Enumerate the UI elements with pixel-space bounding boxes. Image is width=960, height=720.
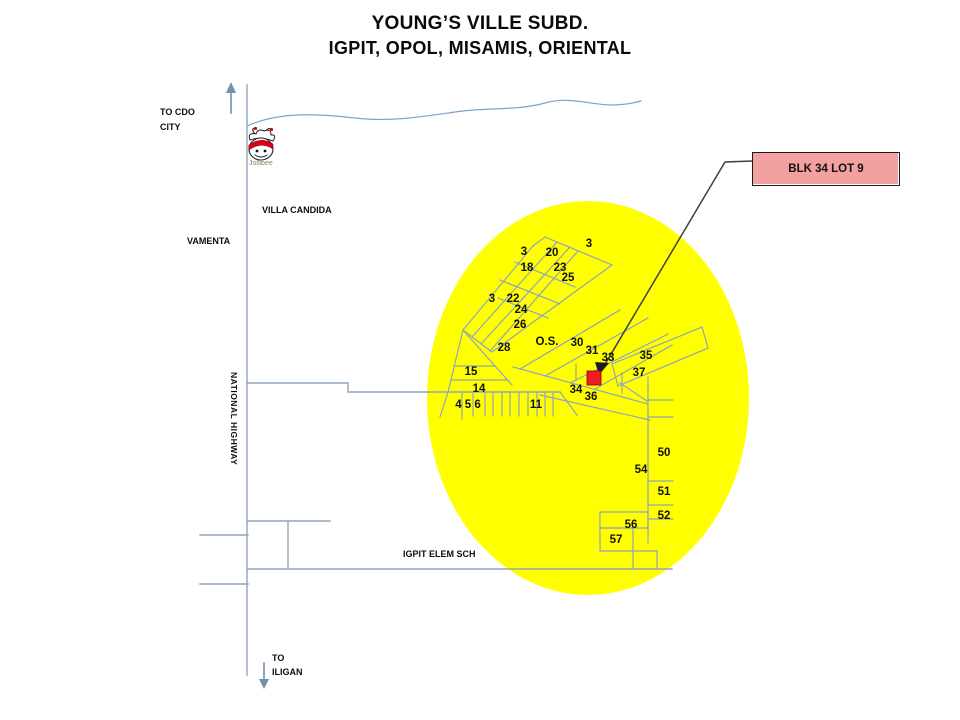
lot-label-18: 18 <box>521 262 534 274</box>
label-igpit-elem-sch: IGPIT ELEM SCH <box>403 547 476 562</box>
lot-label-26: 26 <box>514 319 527 331</box>
lot-label-3: 3 <box>521 246 527 258</box>
callout-blk34-lot9: BLK 34 LOT 9 <box>752 152 900 186</box>
river-line <box>247 100 641 126</box>
label-to-iligan-line1: TO <box>272 653 284 663</box>
lot-label-51: 51 <box>658 486 671 498</box>
lot-label-57: 57 <box>610 534 623 546</box>
lot-label-33: 33 <box>602 352 615 364</box>
lot-label-14: 14 <box>473 383 486 395</box>
lot-label-3: 3 <box>489 293 495 305</box>
lot-label-35: 35 <box>640 350 653 362</box>
lot-label-28: 28 <box>498 342 511 354</box>
lot-label-31: 31 <box>586 345 599 357</box>
lot-label-11: 11 <box>530 399 543 411</box>
lot-label-36: 36 <box>585 391 598 403</box>
label-to-cdo-line2: CITY <box>160 122 181 132</box>
label-to-cdo-city: TO CDOCITY <box>160 105 195 135</box>
subject-lot-marker <box>587 371 601 385</box>
label-villa-candida: VILLA CANDIDA <box>262 203 332 218</box>
lot-label-56: 56 <box>625 519 638 531</box>
lot-label-52: 52 <box>658 510 671 522</box>
map-subtitle: IGPIT, OPOL, MISAMIS, ORIENTAL <box>0 38 960 59</box>
map-canvas: 3203182325322242628O.S.303133353715144 5… <box>0 0 960 720</box>
label-to-iligan: TOILIGAN <box>272 651 303 679</box>
lot-label-37: 37 <box>633 367 646 379</box>
lot-label-456: 4 5 6 <box>455 399 481 411</box>
label-national-highway: NATIONAL HIGHWAY <box>226 372 241 482</box>
label-to-iligan-line2: ILIGAN <box>272 667 303 677</box>
lot-label-54: 54 <box>635 464 648 476</box>
lot-label-20: 20 <box>546 247 559 259</box>
lot-label-34: 34 <box>570 384 583 396</box>
lot-label-15: 15 <box>465 366 478 378</box>
lot-label-25: 25 <box>562 272 575 284</box>
map-title: YOUNG’S VILLE SUBD. <box>0 13 960 35</box>
label-vamenta: VAMENTA <box>187 234 230 249</box>
to-iligan-arrow-icon <box>259 663 269 689</box>
lot-label-3: 3 <box>586 238 592 250</box>
label-jollibee: Jollibee <box>249 156 273 171</box>
lot-label-24: 24 <box>515 304 528 316</box>
vicinity-map-slide: 3203182325322242628O.S.303133353715144 5… <box>0 0 960 720</box>
to-cdo-arrow-icon <box>226 82 236 113</box>
lot-label-50: 50 <box>658 447 671 459</box>
label-to-cdo-line1: TO CDO <box>160 107 195 117</box>
lot-label-30: 30 <box>571 337 584 349</box>
lot-label-os: O.S. <box>535 336 558 348</box>
